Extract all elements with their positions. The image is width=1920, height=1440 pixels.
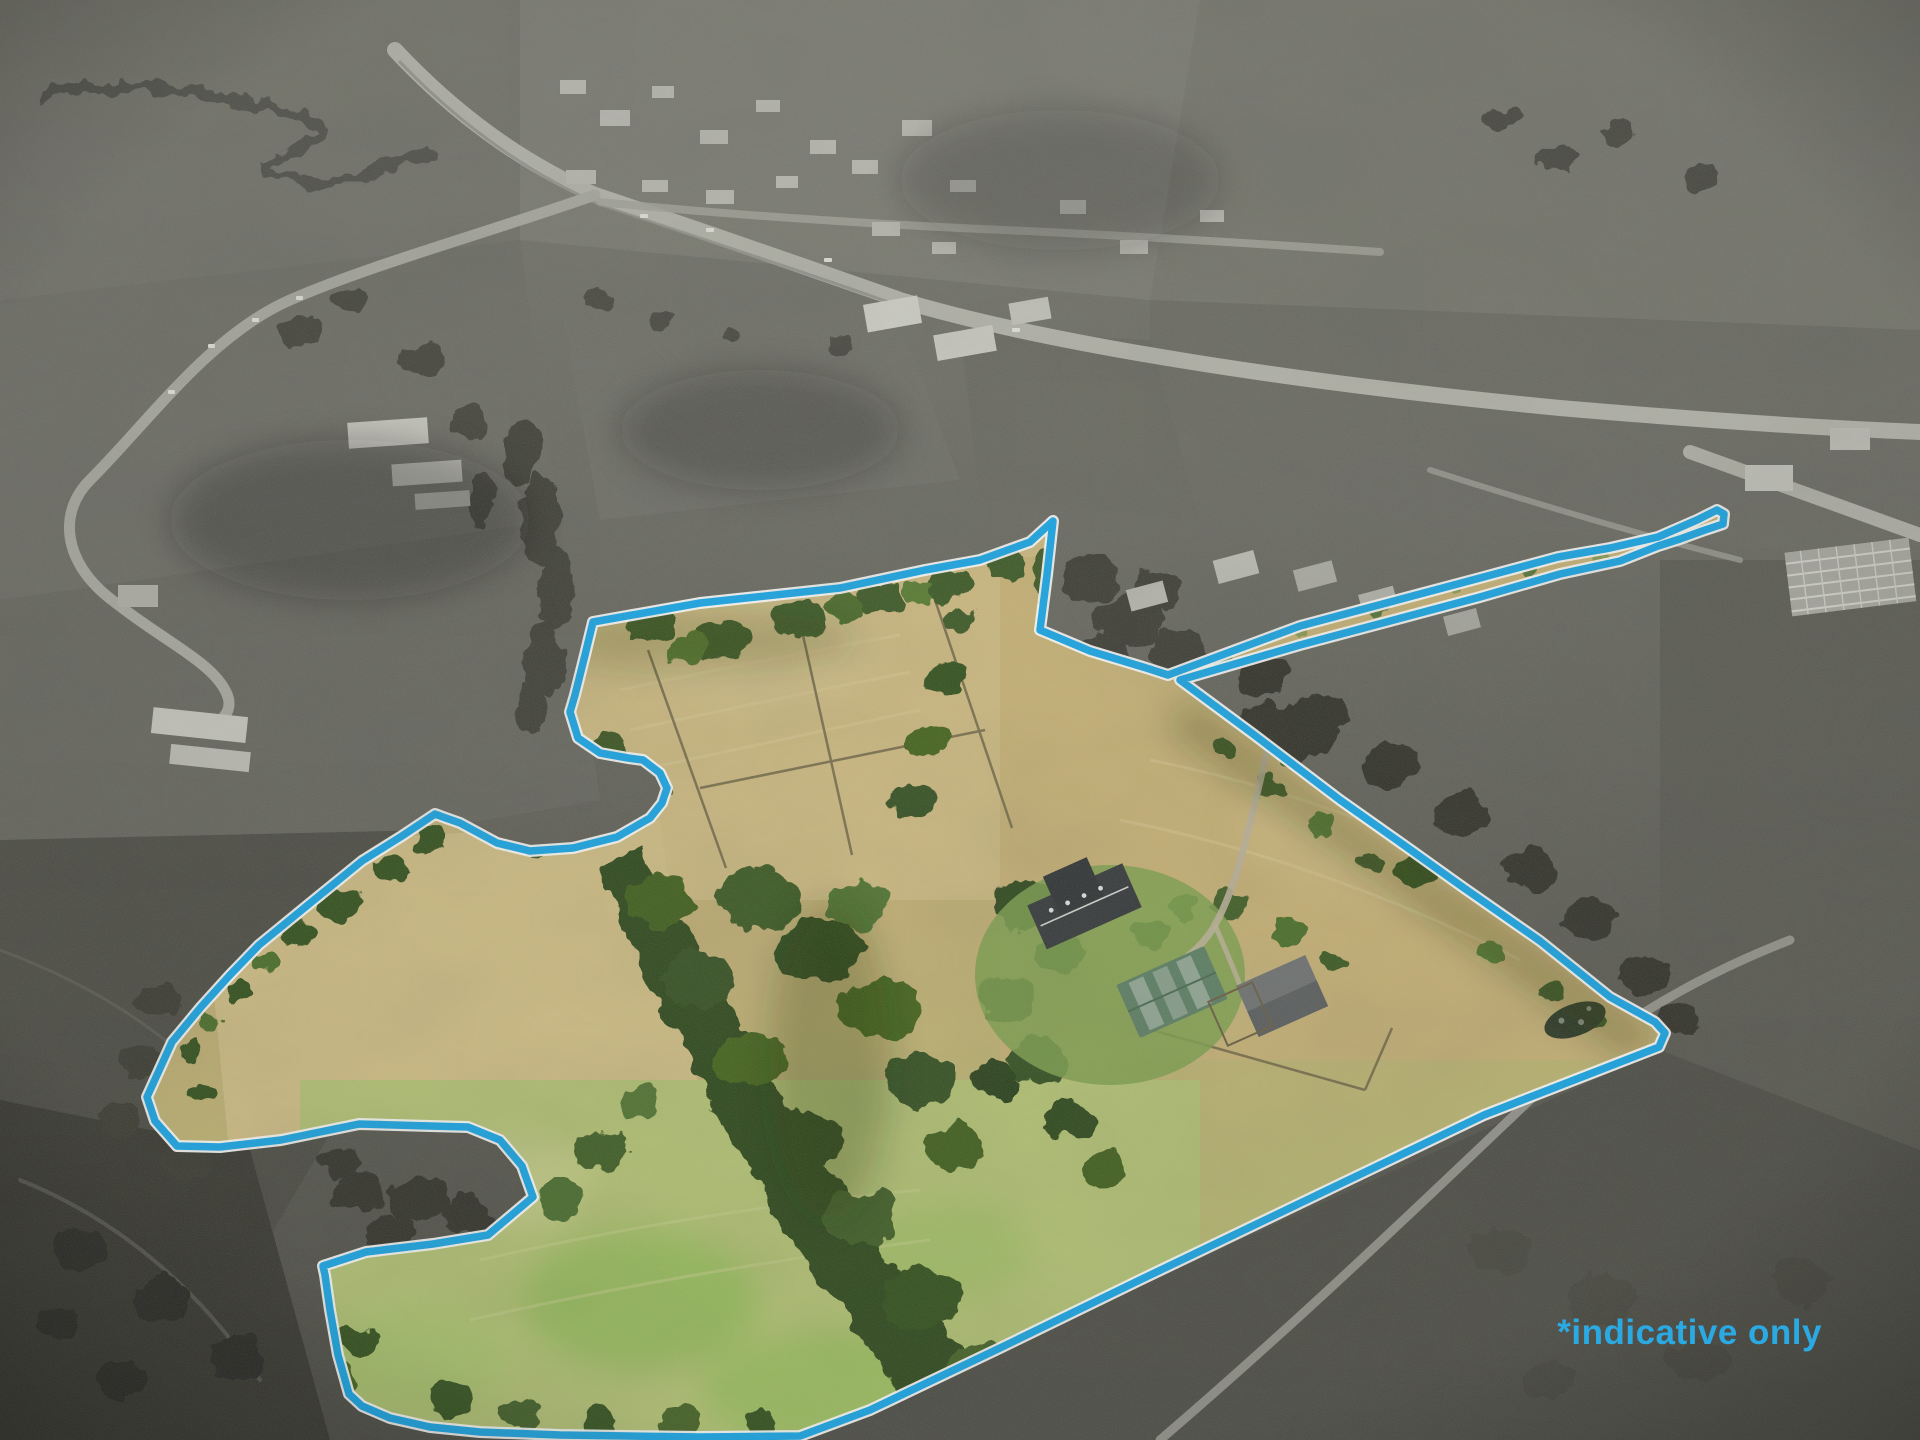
watermark-label: *indicative only xyxy=(1557,1313,1822,1352)
aerial-photo: *indicative only xyxy=(0,0,1920,1440)
aerial-photo-canvas: *indicative only xyxy=(0,0,1920,1440)
vignette-overlay xyxy=(0,0,1920,1440)
